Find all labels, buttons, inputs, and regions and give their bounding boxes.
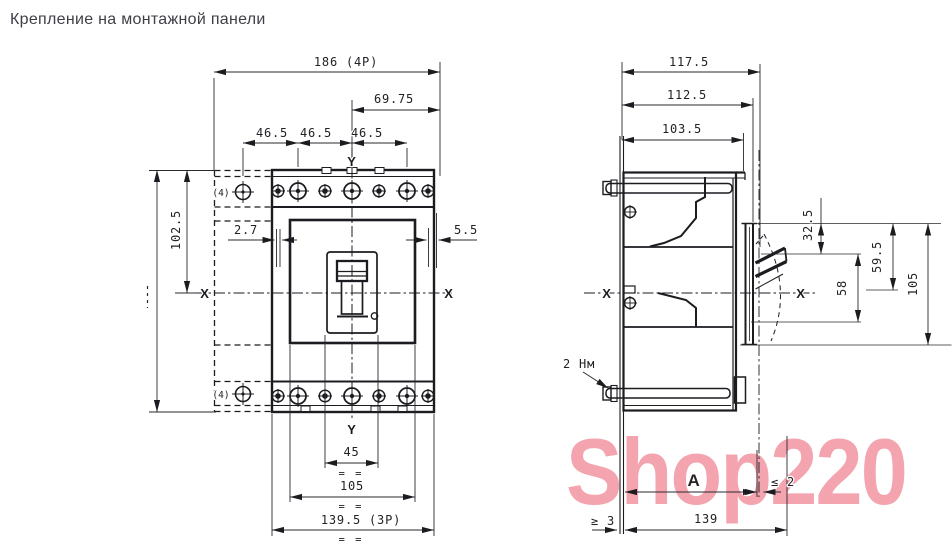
- dim-slot: 45: [343, 445, 359, 459]
- symmetry-mark: = =: [339, 468, 364, 480]
- axis-x-label-right: X: [796, 286, 805, 301]
- dim-face: 105: [340, 479, 364, 493]
- torque-label: 2 Нм: [563, 357, 595, 371]
- dim-depth-body: 103.5: [662, 122, 702, 136]
- axis-y-label-bottom: Y: [347, 422, 356, 437]
- mounting-screw-icon: [623, 205, 637, 219]
- dim-handle-top: 32.5: [801, 209, 815, 241]
- axis-x-label-right: X: [444, 286, 453, 301]
- dim-door-distance: A: [687, 471, 700, 490]
- mounting-screw-icon: [623, 296, 637, 310]
- terminal-bolt-top: [606, 184, 732, 194]
- axis-x-label-left: X: [200, 286, 209, 301]
- dim-panel-thickness: ≥ 3: [591, 514, 615, 528]
- dim-width-3p: 139.5 (3P): [321, 513, 401, 527]
- dim-depth-cover: 112.5: [667, 88, 707, 102]
- dim-door-gap: ≤ 2: [771, 475, 795, 489]
- dim-offset-right: 69.75: [374, 92, 414, 106]
- crosshair-icon: [232, 383, 254, 405]
- symmetry-mark: = =: [339, 534, 364, 546]
- dim-height-upper: 102.5: [169, 210, 183, 250]
- fourth-pole-outline: [215, 170, 273, 412]
- mounting-drawing: Shop220 Крепление на монтажной панели: [0, 0, 952, 559]
- page-title: Крепление на монтажной панели: [10, 11, 266, 28]
- drawing-page: Shop220 Крепление на монтажной панели: [0, 0, 952, 559]
- axis-x-label-left: X: [602, 286, 611, 301]
- pole4-label-bottom: (4): [212, 390, 229, 401]
- dim-pitch-b: 46.5: [300, 126, 332, 140]
- pole4-label-top: (4): [212, 188, 229, 199]
- breaker-front-body: [272, 168, 434, 413]
- front-view: (4) (4) X X Y Y: [148, 55, 479, 546]
- dim-handle-span: 58: [835, 280, 849, 296]
- dim-pitch-a: 46.5: [256, 126, 288, 140]
- crosshair-icon: [232, 181, 254, 203]
- axis-y-label-top: Y: [347, 154, 356, 169]
- dim-depth-to-handle: 139: [694, 512, 718, 526]
- dim-pitch-c: 46.5: [351, 126, 383, 140]
- shop220-watermark: Shop220: [566, 419, 906, 524]
- dim-depth-overall: 117.5: [669, 55, 709, 69]
- dim-width-4p: 186 (4P): [314, 55, 378, 69]
- dim-front-height: 105: [906, 272, 920, 296]
- dim-axis-top: 59.5: [870, 241, 884, 273]
- terminal-screws-top: [271, 180, 435, 202]
- dim-gap-left: 2.7: [234, 223, 258, 237]
- dim-gap-right: 5.5: [454, 223, 478, 237]
- symmetry-mark: = =: [339, 501, 364, 513]
- terminal-screws-bottom: [271, 385, 435, 407]
- escutcheon: [742, 224, 758, 345]
